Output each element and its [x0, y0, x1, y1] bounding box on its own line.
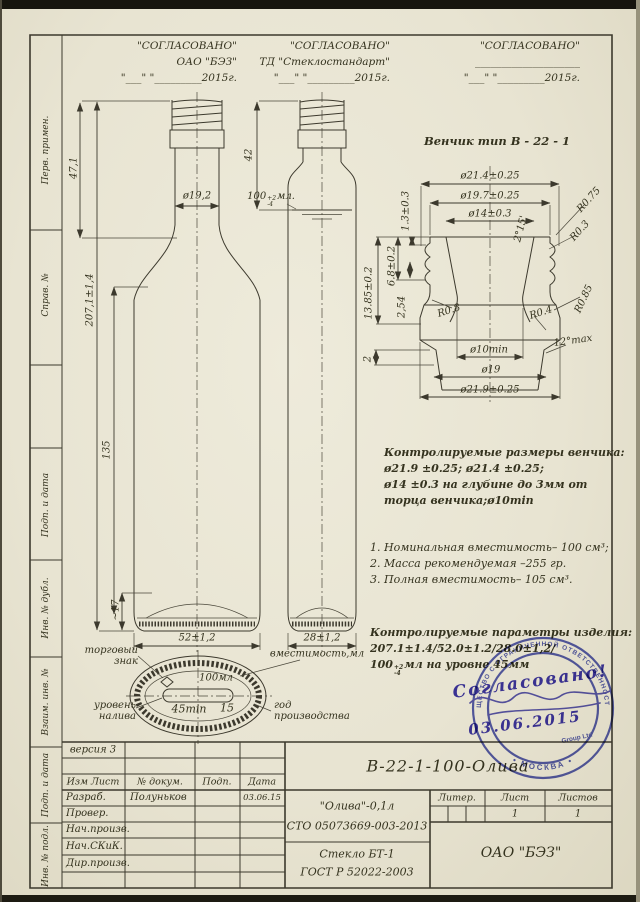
tb-col-izm-list: Изм Лист: [67, 777, 120, 788]
tb-col-docnum: № докум.: [137, 777, 183, 788]
note-list-2: 2. Масса рекомендуемая –255 гр.: [370, 557, 566, 570]
dim-finish-d5: ø19: [482, 365, 501, 376]
approval-org: ОАО "БЭЗ": [95, 54, 237, 70]
tb-version: версия 3: [70, 745, 116, 756]
approval-title: "СОГЛАСОВАНО": [240, 38, 390, 54]
dim-neck-diameter: ø19,2: [183, 191, 211, 202]
finish-title: Венчик тип В - 22 - 1: [424, 134, 570, 148]
base-vol-mark: 100мл: [199, 673, 233, 684]
params-fill-tolerance: +2-4: [394, 665, 403, 676]
tb-role-dir-proizv: Дир.произв.: [66, 858, 130, 869]
note-finish-l2: ø14 ±0.3 на глубине до 3мм от: [384, 478, 587, 491]
approval-stamp: ОБЩЕСТВО С ОГРАНИЧЕННОЙ ОТВЕТСТВЕННОСТЬЮ…: [458, 623, 628, 793]
note-finish-title: Контролируемые размеры венчика:: [384, 446, 625, 459]
approval-date-line: "___" "_________2015г.: [240, 70, 390, 86]
tb-product-sto: СТО 05073669-003-2013: [287, 820, 428, 833]
tb-material: Стекло БТ-1: [319, 848, 394, 861]
drawing-sheet: "СОГЛАСОВАНО" ОАО "БЭЗ" "___" "_________…: [0, 0, 640, 902]
dim-side-top: 42: [244, 149, 255, 162]
tb-sheet-label: Лист: [501, 793, 529, 804]
tb-role-razrab: Разраб.: [66, 792, 106, 803]
dim-finish-d4: ø10min: [470, 345, 508, 356]
dim-neck-height: 47,1: [69, 157, 80, 179]
dim-finish-h2: 6.8±0.2: [387, 246, 398, 286]
approval-title: "СОГЛАСОВАНО": [95, 38, 237, 54]
dim-finish-h3: 2,54: [397, 296, 408, 318]
dim-finish-h4: 2: [363, 356, 374, 362]
label-capacity: вместимость,мл: [270, 649, 364, 660]
tb-role-prover: Провер.: [66, 808, 108, 819]
dim-width-side: 28±1,2: [303, 633, 340, 644]
tb-col-date: Дата: [248, 777, 276, 788]
label-trademark: торговый знак: [80, 645, 138, 667]
dim-finish-d6: ø21.9±0.25: [461, 385, 520, 396]
tb-role-nach-skik: Нач.СКиК.: [66, 841, 123, 852]
approval-org: ТД "Стеклостандарт": [240, 54, 390, 70]
margin-label-vzaim-inv: Взаим. инв. №: [41, 668, 51, 735]
approval-org: ____________________: [425, 54, 580, 70]
tb-sheet-value: 1: [512, 809, 518, 820]
tb-company: ОАО "БЭЗ": [481, 845, 562, 861]
fill-tol-minus: -4: [267, 202, 276, 208]
dim-finish-d3: ø14±0.3: [468, 209, 511, 220]
note-list-3: 3. Полная вместимость– 105 см³.: [370, 573, 573, 586]
dim-width-front: 52±1,2: [178, 633, 215, 644]
approval-block-2: "СОГЛАСОВАНО" ТД "Стеклостандарт" "___" …: [240, 38, 390, 86]
tb-col-sign: Подп.: [202, 777, 231, 788]
dim-fill-level: 100+2-4мл.: [247, 191, 295, 207]
base-15-mark: 15: [220, 702, 234, 715]
tb-material-gost: ГОСТ Р 52022-2003: [300, 866, 413, 879]
margin-label-inv-podl: Инв. № подл.: [41, 825, 51, 887]
stamp-inner-text: Group Ltd: [561, 732, 593, 745]
tb-sheets-label: Листов: [558, 793, 598, 804]
params-tol-minus: -4: [394, 671, 403, 677]
tb-name-razrab: Полуньков: [130, 792, 187, 803]
margin-label-podp-data-1: Подп. и дата: [41, 473, 51, 537]
fill-tolerance: +2-4: [267, 196, 276, 207]
approval-block-1: "СОГЛАСОВАНО" ОАО "БЭЗ" "___" "_________…: [95, 38, 237, 86]
dim-base-height: ~17: [111, 599, 122, 620]
approval-date-line: "___" "_________2015г.: [425, 70, 580, 86]
dim-finish-d1: ø21.4±0.25: [461, 171, 520, 182]
label-production-year: год производства: [274, 700, 358, 722]
fill-unit: мл.: [277, 191, 295, 202]
base-45min-mark: 45min: [171, 703, 206, 716]
tb-role-nach-proizv: Нач.произв.: [66, 824, 130, 835]
dim-finish-d2: ø19.7±0.25: [461, 191, 520, 202]
stamp-rings: ОБЩЕСТВО С ОГРАНИЧЕННОЙ ОТВЕТСТВЕННОСТЬЮ…: [458, 623, 628, 793]
label-fill-level: уровень налива: [80, 700, 136, 722]
note-finish-l1: ø21.9 ±0.25; ø21.4 ±0.25;: [384, 462, 544, 475]
dim-total-height: 207,1±1,4: [85, 274, 96, 327]
note-list-1: 1. Номинальная вместимость– 100 см³;: [370, 541, 609, 554]
dim-finish-t1: 1.3±0.3: [401, 191, 412, 231]
margin-label-podp-data-2: Подп. и дата: [41, 753, 51, 817]
tb-liter-label: Литер.: [438, 793, 476, 804]
margin-label-inv-dubl: Инв. № дубл.: [41, 577, 51, 638]
approval-date-line: "___" "_________2015г.: [95, 70, 237, 86]
margin-label-perv-primen: Перв. примен.: [41, 116, 51, 185]
dim-finish-h1: 13.85±0.2: [364, 267, 375, 320]
note-finish-l3: торца венчика;ø10min: [384, 494, 534, 507]
approval-block-3: "СОГЛАСОВАНО" ____________________ "___"…: [425, 38, 580, 86]
tb-product-name: "Олива"-0,1л: [320, 800, 394, 813]
fill-value: 100: [247, 191, 266, 202]
approval-title: "СОГЛАСОВАНО": [425, 38, 580, 54]
params-fill-value: 100: [370, 658, 393, 671]
margin-label-sprav-no: Справ. №: [41, 273, 51, 316]
dim-body-height: 135: [102, 440, 113, 459]
tb-sheets-value: 1: [575, 809, 581, 820]
tb-date-razrab: 03.06.15: [243, 793, 281, 803]
